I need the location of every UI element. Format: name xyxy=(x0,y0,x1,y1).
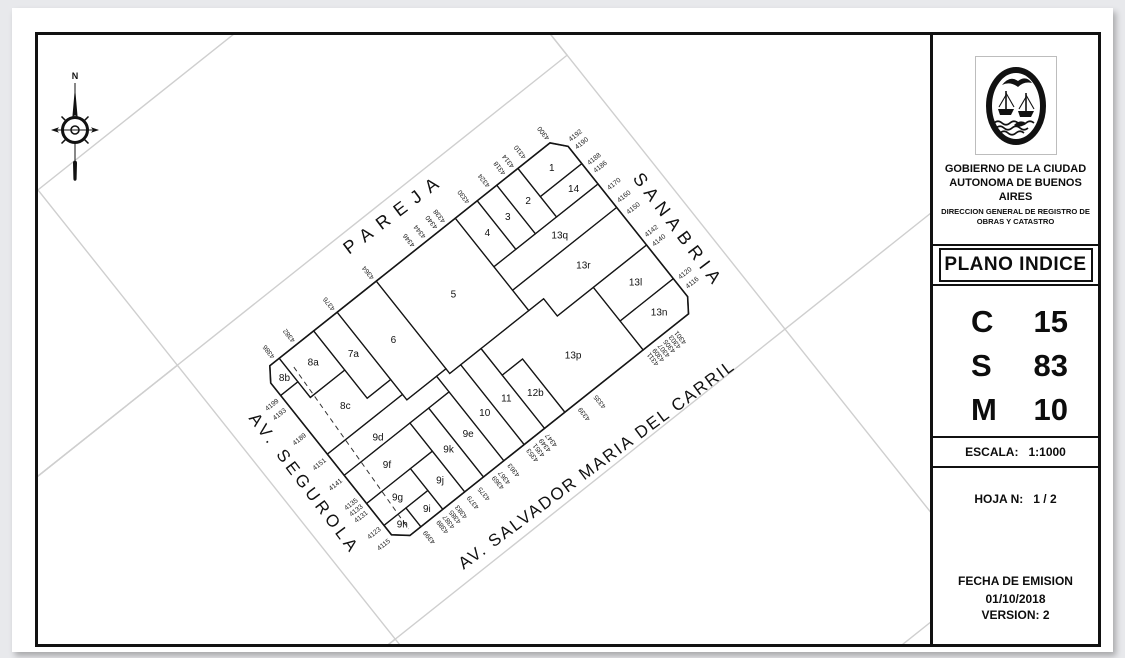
parcel-label: 13n xyxy=(651,307,668,318)
parcel-label: 11 xyxy=(501,393,512,404)
parcel-label: 9i xyxy=(423,504,431,515)
city-crest-box xyxy=(975,56,1057,155)
parcel-label: 13l xyxy=(629,278,642,289)
address: 4363 xyxy=(507,462,522,478)
map-area: 1 2 3 4 5 6 7a 8a 8b 8c 9d 9e 9f xyxy=(38,35,930,644)
parcel-label: 10 xyxy=(479,408,491,419)
address: 4339 xyxy=(577,406,592,422)
parcel-label: 9d xyxy=(372,433,383,444)
parcel-label: 4 xyxy=(485,228,491,239)
compass-rose: N xyxy=(51,71,99,181)
parcel-label: 9h xyxy=(397,519,408,530)
address: 4330 xyxy=(457,188,472,204)
org-name-line1: GOBIERNO DE LA CIUDAD xyxy=(933,163,1098,177)
org-section: GOBIERNO DE LA CIUDAD AUTONOMA DE BUENOS… xyxy=(933,35,1098,246)
address: 4141 xyxy=(328,478,344,493)
parcel-label: 9j xyxy=(436,475,444,486)
parcel-label: 5 xyxy=(451,290,457,301)
csm-row-m: M 10 xyxy=(971,390,1068,434)
csm-letter: M xyxy=(971,390,997,434)
address: 4193 xyxy=(272,407,288,422)
address: 4310 xyxy=(513,143,528,159)
issue-date: FECHA DE EMISION 01/10/2018 xyxy=(958,572,1073,608)
parcel-label: 6 xyxy=(391,335,397,346)
address: 4300 xyxy=(536,125,551,141)
cadastral-map: 1 2 3 4 5 6 7a 8a 8b 8c 9d 9e 9f xyxy=(38,35,930,644)
csm-row-s: S 83 xyxy=(971,346,1068,390)
issue-date-label: FECHA DE EMISION xyxy=(958,572,1073,590)
block-outline xyxy=(262,135,696,544)
parcel-label: 13p xyxy=(565,350,582,361)
csm-value: 10 xyxy=(1034,390,1068,434)
csm-row-c: C 15 xyxy=(971,302,1068,346)
plan-sheet: 1 2 3 4 5 6 7a 8a 8b 8c 9d 9e 9f xyxy=(12,8,1113,652)
parcel-label: 8c xyxy=(340,401,351,412)
address: 4115 xyxy=(376,538,392,553)
scale-label: ESCALA: xyxy=(965,445,1018,459)
address: 4379 xyxy=(466,494,481,510)
parcel-label: 8b xyxy=(279,373,291,384)
plan-title: PLANO INDICE xyxy=(939,248,1093,282)
address: 4170 xyxy=(606,177,622,192)
address: 4160 xyxy=(616,189,632,204)
parcel-label: 7a xyxy=(348,349,360,360)
address: 4151 xyxy=(312,457,328,472)
parcel-label: 9g xyxy=(392,493,403,504)
parcel-label: 9k xyxy=(443,444,455,455)
plan-frame: 1 2 3 4 5 6 7a 8a 8b 8c 9d 9e 9f xyxy=(35,32,1101,647)
address: 4335 xyxy=(593,393,608,409)
parcel-label: 1 xyxy=(549,163,555,174)
buenos-aires-crest-icon xyxy=(984,65,1048,147)
issue-date-value: 01/10/2018 xyxy=(958,590,1073,608)
version-label: VERSION: 2 xyxy=(981,608,1049,622)
parcel-label: 3 xyxy=(505,212,511,223)
address: 4364 xyxy=(361,264,376,280)
sheet-number: HOJA N: 1 / 2 xyxy=(974,492,1056,506)
parcel-label: 9f xyxy=(383,460,392,471)
parcel-label: 9e xyxy=(463,429,475,440)
address: 4399 xyxy=(422,529,437,545)
csm-value: 83 xyxy=(1034,346,1068,390)
parcel-label: 12b xyxy=(527,388,544,399)
parcel-label: 13q xyxy=(551,231,568,242)
address: 4386 xyxy=(262,343,277,359)
title-block-panel: GOBIERNO DE LA CIUDAD AUTONOMA DE BUENOS… xyxy=(930,35,1098,644)
org-dept-line2: OBRAS Y CATASTRO xyxy=(933,217,1098,227)
address: 4375 xyxy=(477,485,492,501)
parcel-label: 14 xyxy=(568,184,580,195)
address: 4150 xyxy=(626,201,642,216)
org-name-line2: AUTONOMA DE BUENOS AIRES xyxy=(933,177,1098,205)
csm-letter: C xyxy=(971,302,993,346)
parcel-label: 2 xyxy=(525,196,531,207)
address: 4140 xyxy=(651,233,667,248)
address: 4324 xyxy=(477,172,492,188)
address: 4189 xyxy=(292,432,308,447)
sheet-info-section: HOJA N: 1 / 2 FECHA DE EMISION 01/10/201… xyxy=(933,468,1098,644)
csm-letter: S xyxy=(971,346,992,390)
address: 4376 xyxy=(322,295,337,311)
org-dept-line1: DIRECCION GENERAL DE REGISTRO DE xyxy=(933,207,1098,217)
parcel-label: 8a xyxy=(308,358,320,369)
sheet-number-value: 1 / 2 xyxy=(1033,492,1056,506)
address: 4346 xyxy=(402,232,417,248)
address: 4116 xyxy=(685,276,701,291)
scale-value: 1:1000 xyxy=(1028,445,1065,459)
compass-north-label: N xyxy=(72,71,79,81)
plan-title-section: PLANO INDICE xyxy=(933,246,1098,286)
parcel-label: 13r xyxy=(576,260,591,271)
address: 4382 xyxy=(282,327,297,343)
address: 4344 xyxy=(413,223,428,239)
scale-section: ESCALA: 1:1000 xyxy=(933,438,1098,468)
csm-section: C 15 S 83 M 10 xyxy=(933,286,1098,438)
address: 4123 xyxy=(366,526,382,541)
csm-value: 15 xyxy=(1034,302,1068,346)
sheet-number-label: HOJA N: xyxy=(974,492,1023,506)
